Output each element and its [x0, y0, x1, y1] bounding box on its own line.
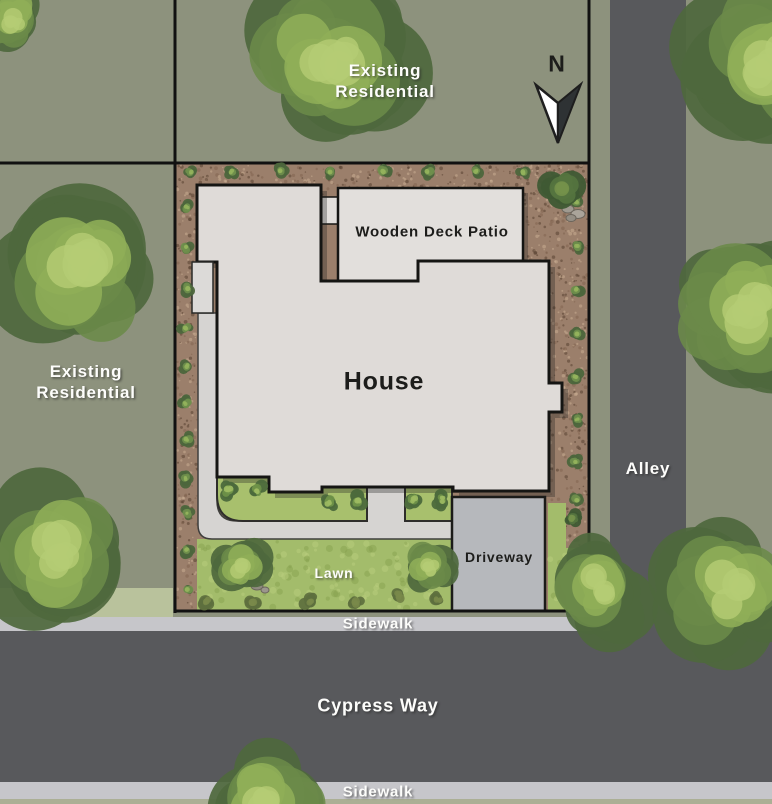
- porch-stoop: [192, 262, 213, 313]
- bottom-verge: [0, 799, 772, 804]
- sidewalk-top: [0, 617, 610, 631]
- site-plan: Existing Residential N Existing Resident…: [0, 0, 772, 804]
- sidewalk-bottom: [0, 782, 772, 799]
- driveway-slab: [452, 497, 545, 611]
- street-pavement: [0, 631, 772, 782]
- site-plan-drawing: [0, 0, 772, 804]
- canopy: [407, 542, 458, 593]
